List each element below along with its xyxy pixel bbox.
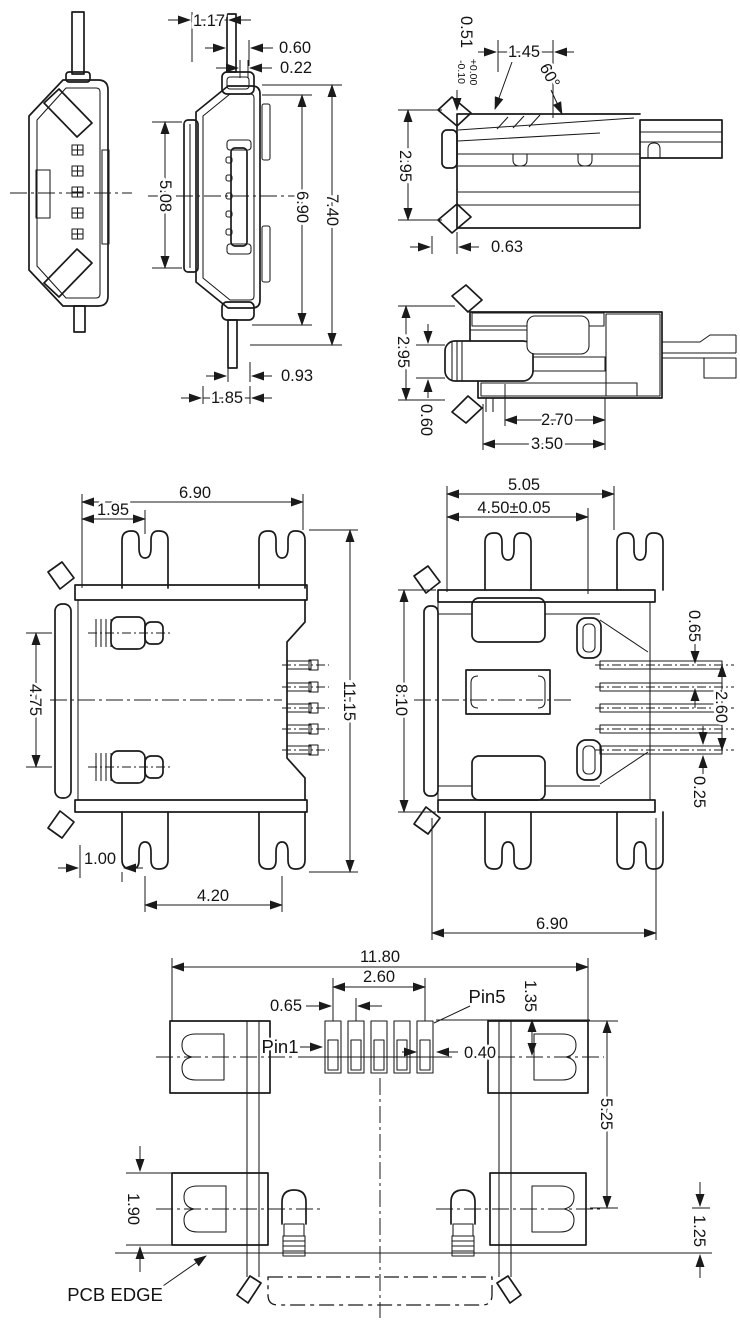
dim-side-base-width: 1.85 (211, 389, 243, 407)
dim-pcb-pad-span: 2.60 (363, 968, 395, 986)
dim-side-shell-wall: 0.22 (280, 59, 312, 77)
dim-latch-offset: 1.45 (508, 43, 540, 61)
dim-side-lead-width: 1.17 (193, 12, 225, 30)
dim-pcb-mount-pad-height: 1.90 (124, 1193, 142, 1225)
dim-side-body-height: 6.90 (293, 191, 311, 223)
dim-tab-tol-minus: -0.10 (455, 60, 467, 84)
dim-foot-offset: 0.63 (491, 238, 523, 256)
rear-dimensions (398, 486, 722, 940)
pcb-dimensions (126, 958, 710, 1288)
dim-pin-pitch: 0.65 (685, 610, 703, 642)
dim-tab-outer-span: 5.05 (508, 476, 540, 494)
front-contacts (72, 145, 83, 239)
engineering-drawing: 1.17 0.60 0.22 5.08 6.90 7.40 0.93 1.85 (0, 0, 740, 1320)
dim-overall-depth: 3.50 (531, 435, 563, 453)
dim-tab-spacing: 4.20 (197, 887, 229, 905)
dim-pin-span: 2.60 (712, 691, 730, 723)
label-pin1: Pin1 (261, 1036, 298, 1057)
dim-body-length: 8.10 (392, 684, 410, 716)
view-front (10, 12, 132, 332)
dim-latch-angle: 60° (536, 60, 564, 90)
view-rear-profile: 0.51 +0.00 -0.10 1.45 60° 2.95 0.63 (396, 16, 722, 256)
dim-leg-spacing: 4.75 (26, 684, 44, 716)
dim-tab-span: 4.50±0.05 (477, 499, 550, 517)
dim-pcb-pad-row-gap: 5.25 (597, 1098, 615, 1130)
pcb-pin-pads (325, 1021, 433, 1073)
dim-pin-thickness: 0.25 (690, 776, 708, 808)
dim-top-tab-offset: 1.95 (97, 501, 129, 519)
dim-pcb-edge-offset: 1.25 (690, 1215, 708, 1247)
view-section: 2.95 0.60 2.70 3.50 (394, 285, 736, 453)
dim-side-overall-height: 7.40 (323, 194, 341, 226)
label-pcb-edge: PCB EDGE (67, 1284, 163, 1305)
dim-top-body-width: 6.90 (179, 484, 211, 502)
pcb-connector-outline (115, 1021, 712, 1305)
dim-pcb-pad-width: 0.40 (464, 1044, 496, 1062)
side-outline (184, 14, 270, 368)
dim-rear-profile-height: 2.95 (396, 150, 414, 182)
dim-overall-length: 11.15 (340, 681, 358, 721)
dim-section-height: 2.95 (394, 336, 412, 368)
dim-pcb-pad-pitch: 0.65 (270, 997, 302, 1015)
dim-inner-depth: 2.70 (541, 411, 573, 429)
dim-rear-body-width: 6.90 (536, 915, 568, 933)
rear-profile-outline (438, 97, 722, 233)
front-outline (29, 12, 109, 332)
label-pin5: Pin5 (468, 986, 505, 1007)
view-rear: 5.05 4.50±0.05 8.10 0.65 2.60 0.25 6.90 (392, 476, 734, 940)
dim-tab-height: 0.51 (457, 16, 475, 48)
dim-lip-thickness: 0.60 (417, 404, 435, 436)
drawing-canvas: 1.17 0.60 0.22 5.08 6.90 7.40 0.93 1.85 (0, 0, 740, 1320)
dim-edge-to-tab: 1.00 (84, 850, 116, 868)
section-outline (445, 285, 736, 423)
dim-side-tip-offset: 0.60 (279, 39, 311, 57)
dim-side-lead-offset: 0.93 (281, 367, 313, 385)
pcb-pads (156, 1021, 604, 1318)
dim-tab-tol-plus: +0.00 (467, 59, 479, 86)
dim-pcb-pad-height: 1.35 (521, 980, 539, 1012)
view-pcb-footprint: 11.80 2.60 0.65 Pin5 1.35 Pin1 0.40 5.25… (67, 948, 712, 1318)
dim-pcb-overall-width: 11.80 (360, 948, 400, 966)
view-side: 1.17 0.60 0.22 5.08 6.90 7.40 0.93 1.85 (148, 12, 342, 407)
view-top: 6.90 1.95 4.75 11.15 1.00 4.20 (26, 484, 358, 912)
rear-outline (414, 533, 734, 869)
top-dimensions (26, 494, 358, 912)
dim-side-tongue-length: 5.08 (156, 180, 174, 212)
